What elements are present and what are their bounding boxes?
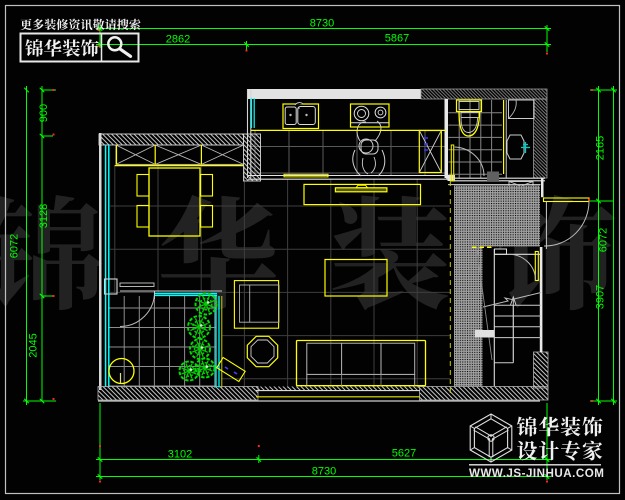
svg-text:2045: 2045 bbox=[28, 333, 40, 357]
svg-text:900: 900 bbox=[38, 104, 50, 122]
svg-text:3102: 3102 bbox=[168, 449, 192, 461]
svg-text:WWW.JS-JINHUA.COM: WWW.JS-JINHUA.COM bbox=[469, 467, 604, 480]
svg-text:6072: 6072 bbox=[9, 234, 21, 258]
svg-text:8730: 8730 bbox=[310, 18, 334, 30]
svg-text:5867: 5867 bbox=[385, 33, 409, 45]
svg-text:8730: 8730 bbox=[312, 466, 336, 478]
svg-text:2165: 2165 bbox=[595, 136, 607, 160]
svg-text:3907: 3907 bbox=[595, 285, 607, 309]
svg-text:5627: 5627 bbox=[392, 448, 416, 460]
svg-text:6072: 6072 bbox=[598, 228, 610, 252]
svg-text:2862: 2862 bbox=[166, 34, 190, 46]
svg-text:3128: 3128 bbox=[38, 204, 50, 228]
